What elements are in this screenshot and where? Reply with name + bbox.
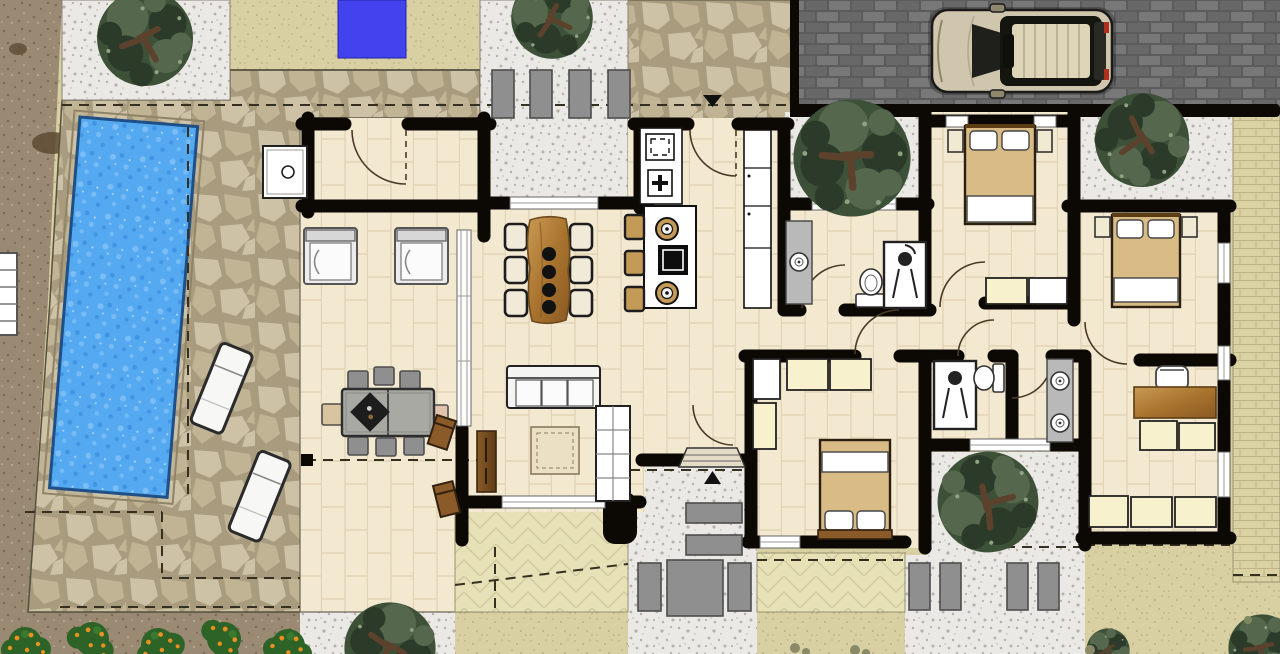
gravel-patio-strip bbox=[628, 462, 757, 654]
wardrobe bbox=[1029, 278, 1067, 304]
dining-chair bbox=[570, 290, 592, 316]
shower bbox=[884, 242, 926, 308]
dining-chair bbox=[505, 224, 527, 250]
kitchen-island bbox=[644, 206, 696, 308]
double-bed bbox=[965, 126, 1035, 224]
paver-terrace-south-living bbox=[455, 510, 628, 612]
plate bbox=[542, 283, 556, 297]
taillight bbox=[1104, 69, 1109, 80]
plate bbox=[542, 300, 556, 314]
dining-table-set bbox=[505, 217, 592, 324]
shower bbox=[934, 361, 976, 429]
dining-chair bbox=[505, 290, 527, 316]
spa-pad-blue bbox=[338, 0, 406, 58]
tall-cabinet-column bbox=[744, 130, 771, 308]
nightstand bbox=[1182, 217, 1197, 237]
floor-plan-image bbox=[0, 0, 1280, 654]
glass-sliding-wall bbox=[457, 230, 471, 426]
paver-path-east bbox=[1233, 112, 1280, 582]
window-east-1 bbox=[1218, 243, 1230, 283]
window-living-south bbox=[502, 496, 605, 508]
plate bbox=[542, 247, 556, 261]
taillight bbox=[1104, 22, 1109, 33]
desk bbox=[1134, 387, 1216, 418]
cabinet bbox=[1175, 497, 1216, 527]
dirt-spot-small bbox=[9, 43, 27, 55]
driveway-edge-west bbox=[790, 0, 799, 117]
plate bbox=[542, 265, 556, 279]
wardrobe bbox=[986, 278, 1027, 304]
toilet bbox=[974, 364, 1004, 392]
armchair-2 bbox=[395, 228, 448, 284]
outdoor-basin bbox=[263, 146, 307, 198]
boundary-post bbox=[301, 454, 313, 466]
bookshelf bbox=[596, 406, 630, 501]
window-east-2 bbox=[1218, 346, 1230, 380]
bar-stool bbox=[625, 251, 644, 275]
cabinet bbox=[1179, 423, 1215, 450]
nightstand bbox=[1037, 130, 1052, 152]
mirror bbox=[990, 90, 1005, 98]
gate-left-edge bbox=[0, 253, 17, 335]
dining-chair bbox=[570, 257, 592, 283]
bar-stool bbox=[625, 215, 644, 239]
window-bedroom1-north-b bbox=[1034, 116, 1056, 127]
site-plan-svg bbox=[0, 0, 1280, 654]
cabinet bbox=[1089, 496, 1128, 527]
end-chair-left bbox=[322, 404, 342, 425]
window-baths-south bbox=[970, 439, 1050, 451]
wardrobe bbox=[753, 403, 776, 449]
cabinet bbox=[1140, 421, 1177, 450]
dining-chair bbox=[570, 224, 592, 250]
window-east-3 bbox=[1218, 452, 1230, 497]
window-living-north bbox=[510, 197, 598, 209]
suv-car bbox=[928, 4, 1116, 98]
bathroom-2 bbox=[1047, 359, 1073, 442]
nightstand bbox=[948, 130, 963, 152]
wardrobe bbox=[753, 359, 780, 399]
window-bedroom3-south bbox=[760, 536, 800, 548]
wardrobe bbox=[787, 359, 828, 390]
double-bed bbox=[818, 440, 892, 539]
sofa bbox=[507, 366, 600, 408]
dining-chair bbox=[505, 257, 527, 283]
rug bbox=[531, 427, 579, 474]
wardrobe bbox=[830, 359, 871, 390]
kitchen-counter-north bbox=[640, 128, 682, 204]
double-bed bbox=[1112, 215, 1180, 307]
tv-console bbox=[477, 431, 496, 492]
mirror bbox=[990, 4, 1005, 12]
bar-stool bbox=[625, 287, 644, 311]
cabinet bbox=[1131, 497, 1172, 527]
nightstand bbox=[1095, 217, 1110, 237]
paver-terrace-south-bedroom bbox=[757, 553, 905, 612]
armchair-1 bbox=[304, 228, 357, 284]
